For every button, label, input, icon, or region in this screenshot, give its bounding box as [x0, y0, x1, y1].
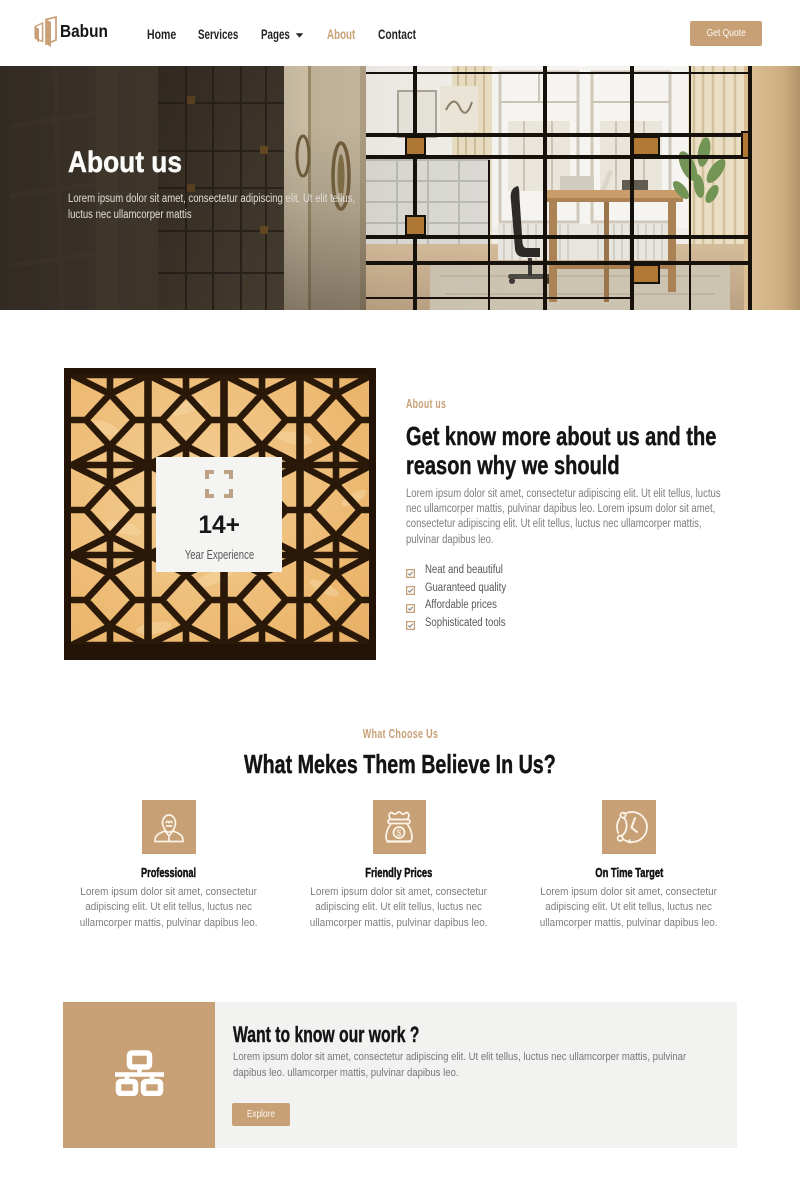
svg-text:$: $: [396, 828, 401, 838]
